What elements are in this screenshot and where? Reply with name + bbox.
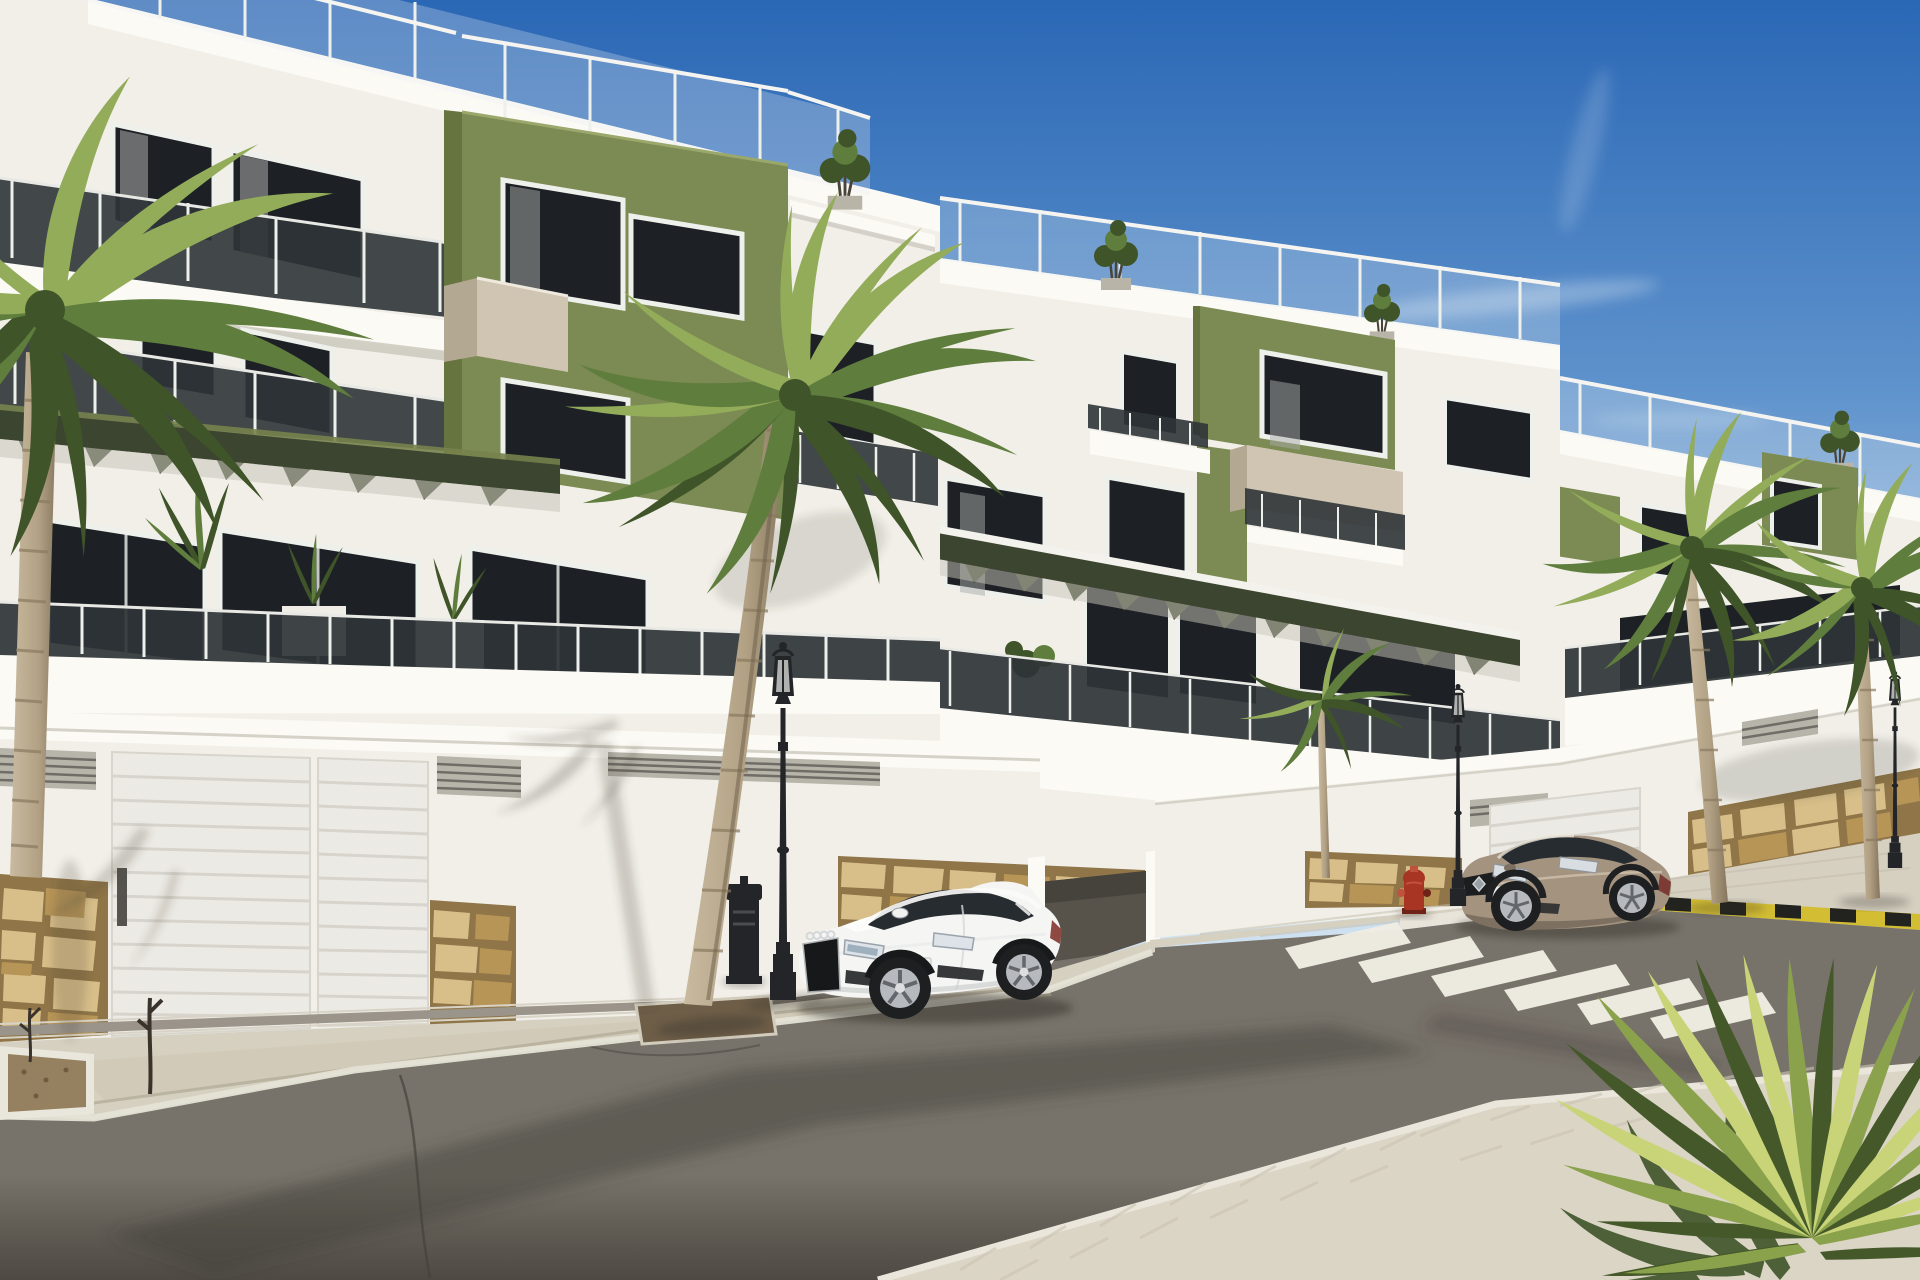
rendered-photo [0, 0, 1920, 1280]
rear-wheel [996, 944, 1052, 1000]
garage-door-1 [112, 752, 310, 1036]
side-mirror [892, 908, 908, 918]
scene-canvas [0, 0, 1920, 1280]
garage-door-2 [318, 758, 428, 1026]
front-wheel [1491, 881, 1541, 931]
garage-door-handle [117, 868, 127, 926]
rear-wheel [1609, 875, 1655, 921]
front-wheel [869, 957, 931, 1019]
